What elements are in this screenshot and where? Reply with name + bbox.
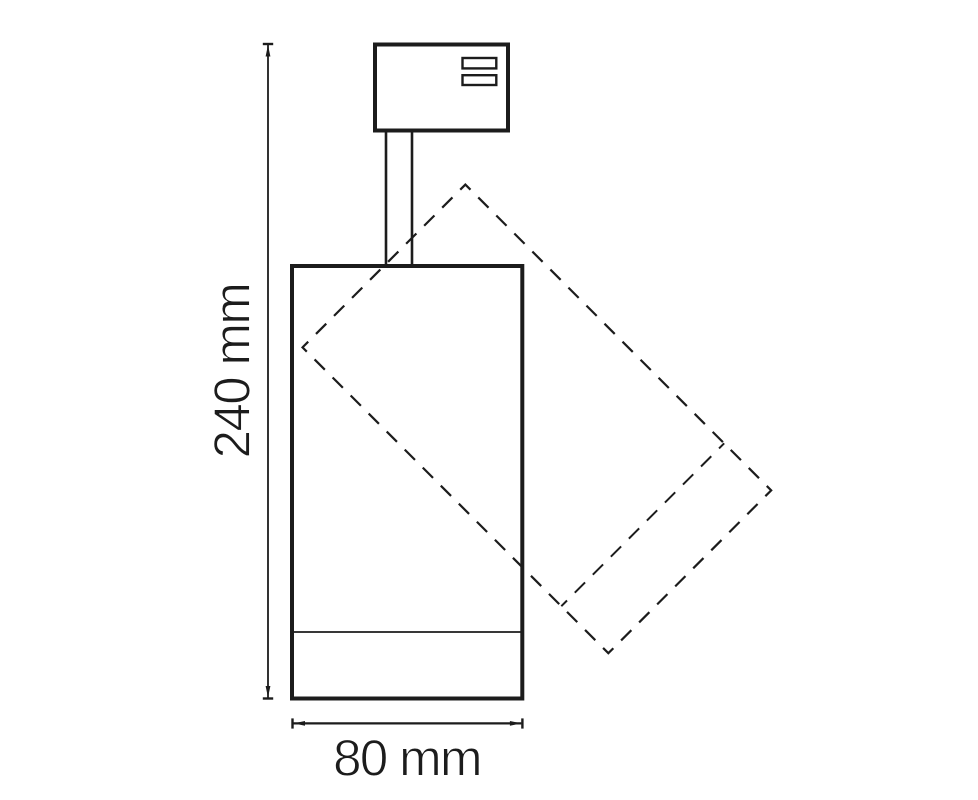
- svg-text:80 mm: 80 mm: [333, 730, 481, 787]
- svg-text:240 mm: 240 mm: [204, 284, 261, 459]
